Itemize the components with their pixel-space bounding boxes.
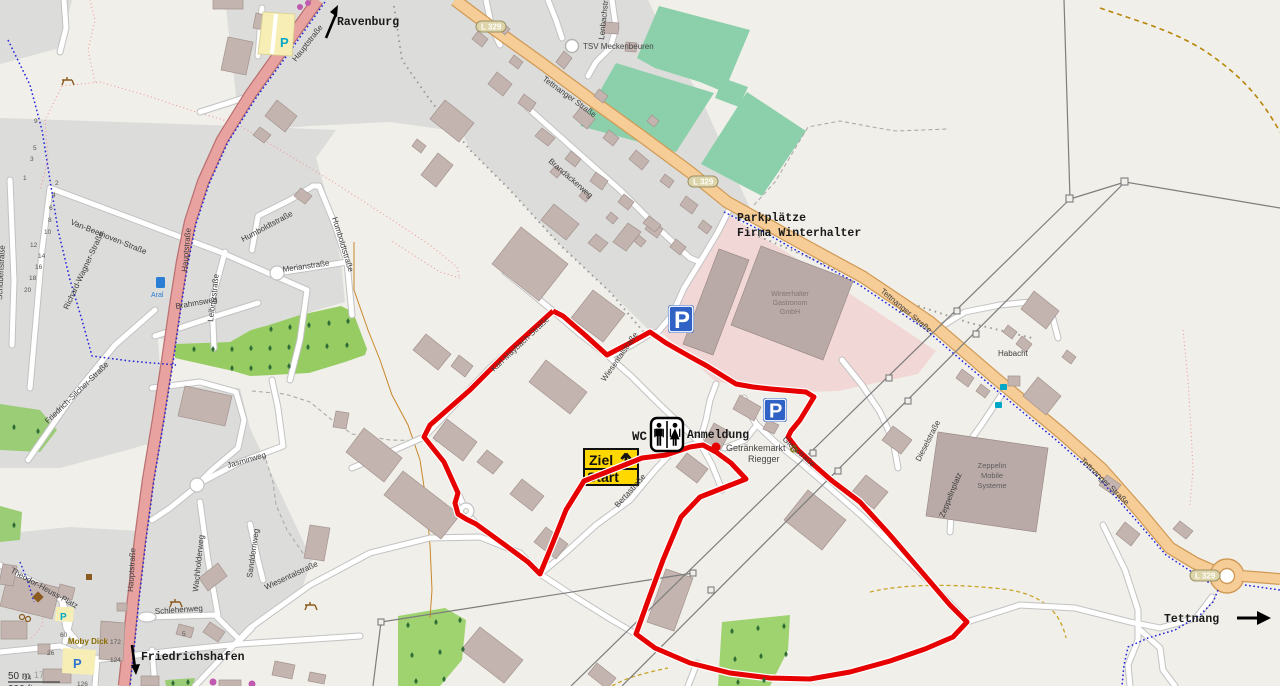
svg-text:P: P [60,612,67,623]
svg-text:Aral: Aral [151,292,164,299]
svg-text:Parkplätze: Parkplätze [737,212,806,225]
svg-text:Getränkemarkt: Getränkemarkt [726,443,786,453]
svg-text:WC: WC [632,430,648,444]
svg-text:TSV Meckenbeuren: TSV Meckenbeuren [583,42,654,51]
svg-text:Tettnang: Tettnang [1164,613,1219,626]
svg-text:124: 124 [110,657,121,664]
svg-text:4: 4 [52,192,56,199]
svg-text:9: 9 [34,118,38,125]
svg-text:14: 14 [38,253,46,260]
svg-text:20: 20 [24,287,32,294]
svg-text:Systeme: Systeme [977,481,1006,490]
svg-text:Gastronom: Gastronom [773,300,808,307]
svg-text:Firma Winterhalter: Firma Winterhalter [737,227,861,240]
svg-text:GmbH: GmbH [780,309,800,316]
svg-text:Friedrichshafen: Friedrichshafen [141,651,245,664]
svg-text:10: 10 [44,229,52,236]
svg-text:17: 17 [34,670,44,680]
svg-text:Riegger: Riegger [748,454,780,464]
svg-text:12: 12 [30,242,38,249]
svg-text:1: 1 [23,175,27,182]
svg-text:Ravenburg: Ravenburg [337,16,399,29]
svg-text:60: 60 [60,632,68,639]
svg-text:5: 5 [33,145,37,152]
svg-text:P: P [769,401,782,423]
svg-text:8: 8 [48,217,52,224]
svg-text:5: 5 [182,631,186,638]
svg-text:P: P [280,35,289,50]
svg-text:Mobile: Mobile [981,471,1003,480]
svg-text:L 329: L 329 [481,23,502,32]
svg-text:Winterhalter: Winterhalter [771,291,809,298]
svg-text:126: 126 [77,681,88,686]
svg-text:2: 2 [55,180,59,187]
svg-text:Habacht: Habacht [998,349,1029,358]
svg-text:Moby Dick: Moby Dick [68,637,109,646]
svg-text:18: 18 [29,275,37,282]
svg-text:Anmeldung: Anmeldung [687,429,749,442]
svg-text:P: P [674,307,690,334]
svg-text:6: 6 [49,205,53,212]
svg-text:Ziel: Ziel [589,452,613,468]
svg-text:L 329: L 329 [1195,572,1216,581]
svg-text:16: 16 [35,264,43,271]
svg-text:P: P [73,656,82,671]
svg-text:L 329: L 329 [693,178,714,187]
svg-text:3: 3 [30,156,34,163]
svg-text:24: 24 [24,675,32,682]
svg-text:Zeppelin: Zeppelin [978,461,1007,470]
svg-text:172: 172 [110,639,121,646]
svg-text:26: 26 [47,650,55,657]
